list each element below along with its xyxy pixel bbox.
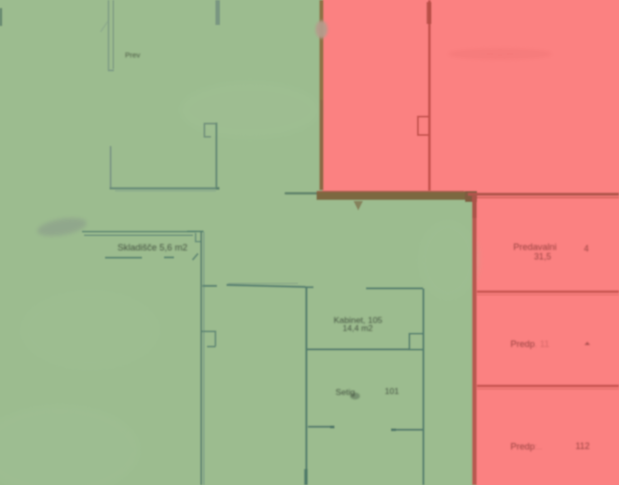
svg-text:Predp:..: Predp:.. [511,441,543,451]
svg-text:31,5: 31,5 [534,252,551,262]
svg-text:101: 101 [385,386,399,396]
svg-text:Skladišče 5,6 m2: Skladišče 5,6 m2 [118,243,188,253]
svg-text:Predp. 11: Predp. 11 [511,339,550,349]
svg-text:14,4 m2: 14,4 m2 [343,323,374,333]
svg-text:4: 4 [584,243,589,253]
svg-text:Prev: Prev [125,51,141,60]
svg-text:112: 112 [576,441,590,451]
